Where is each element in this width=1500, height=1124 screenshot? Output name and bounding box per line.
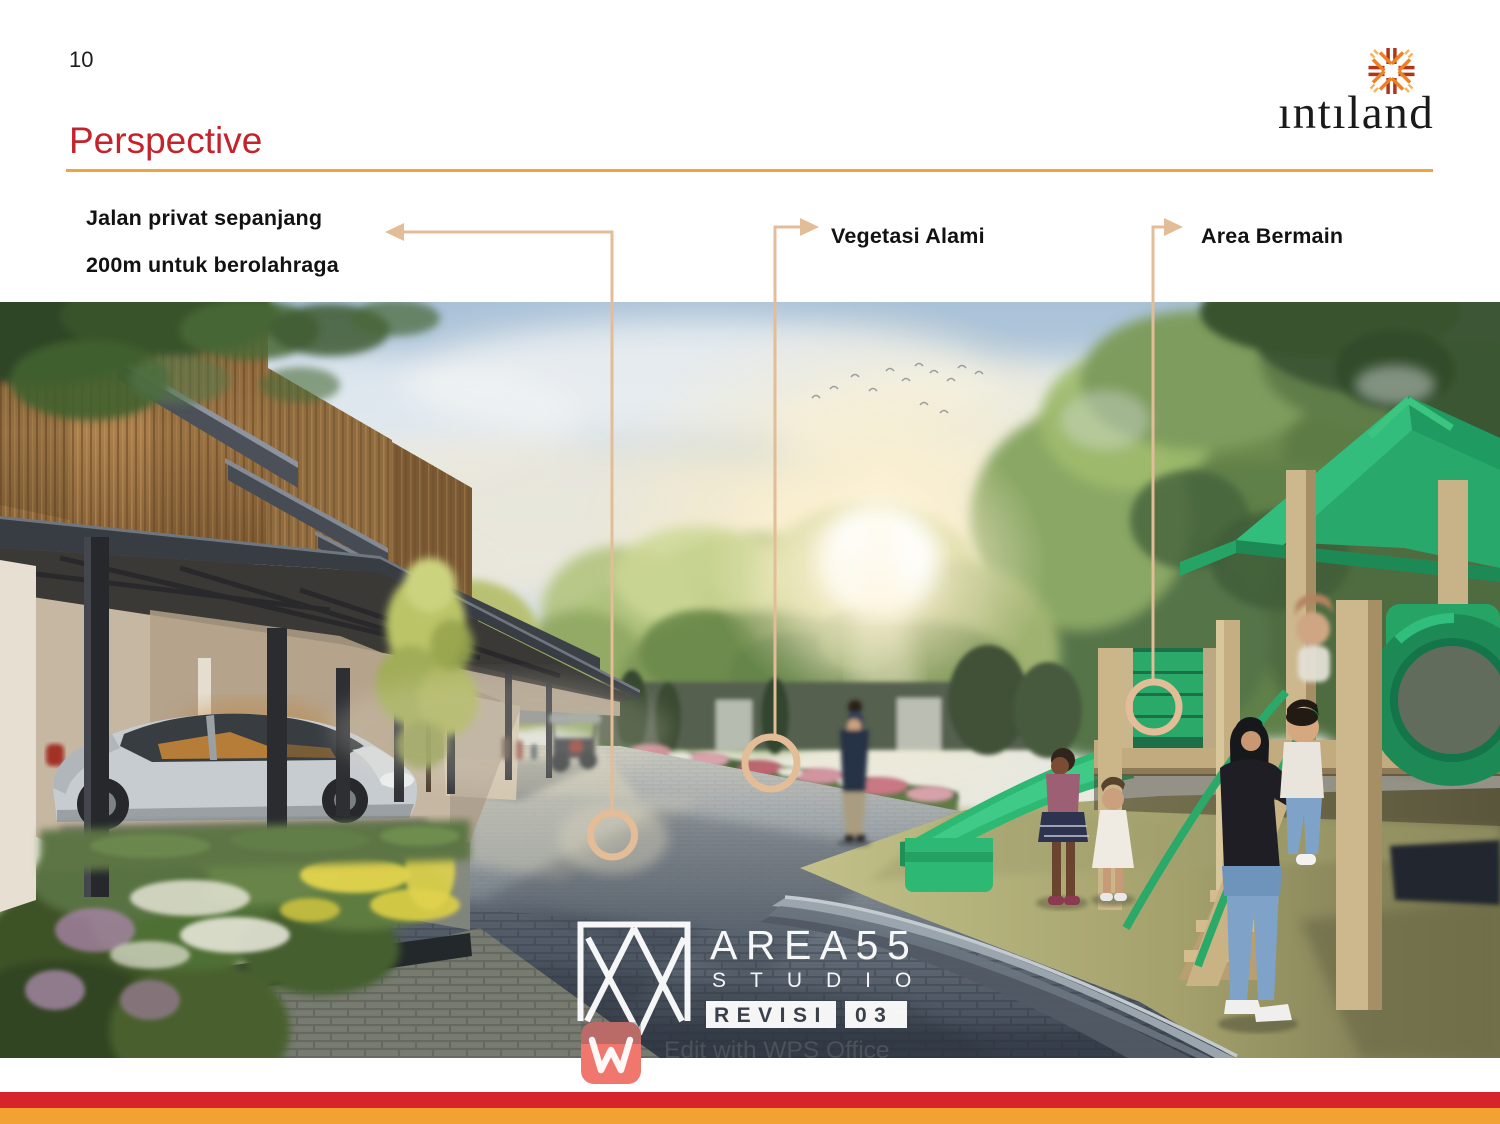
- svg-text:ıntıland: ıntıland: [1278, 87, 1434, 139]
